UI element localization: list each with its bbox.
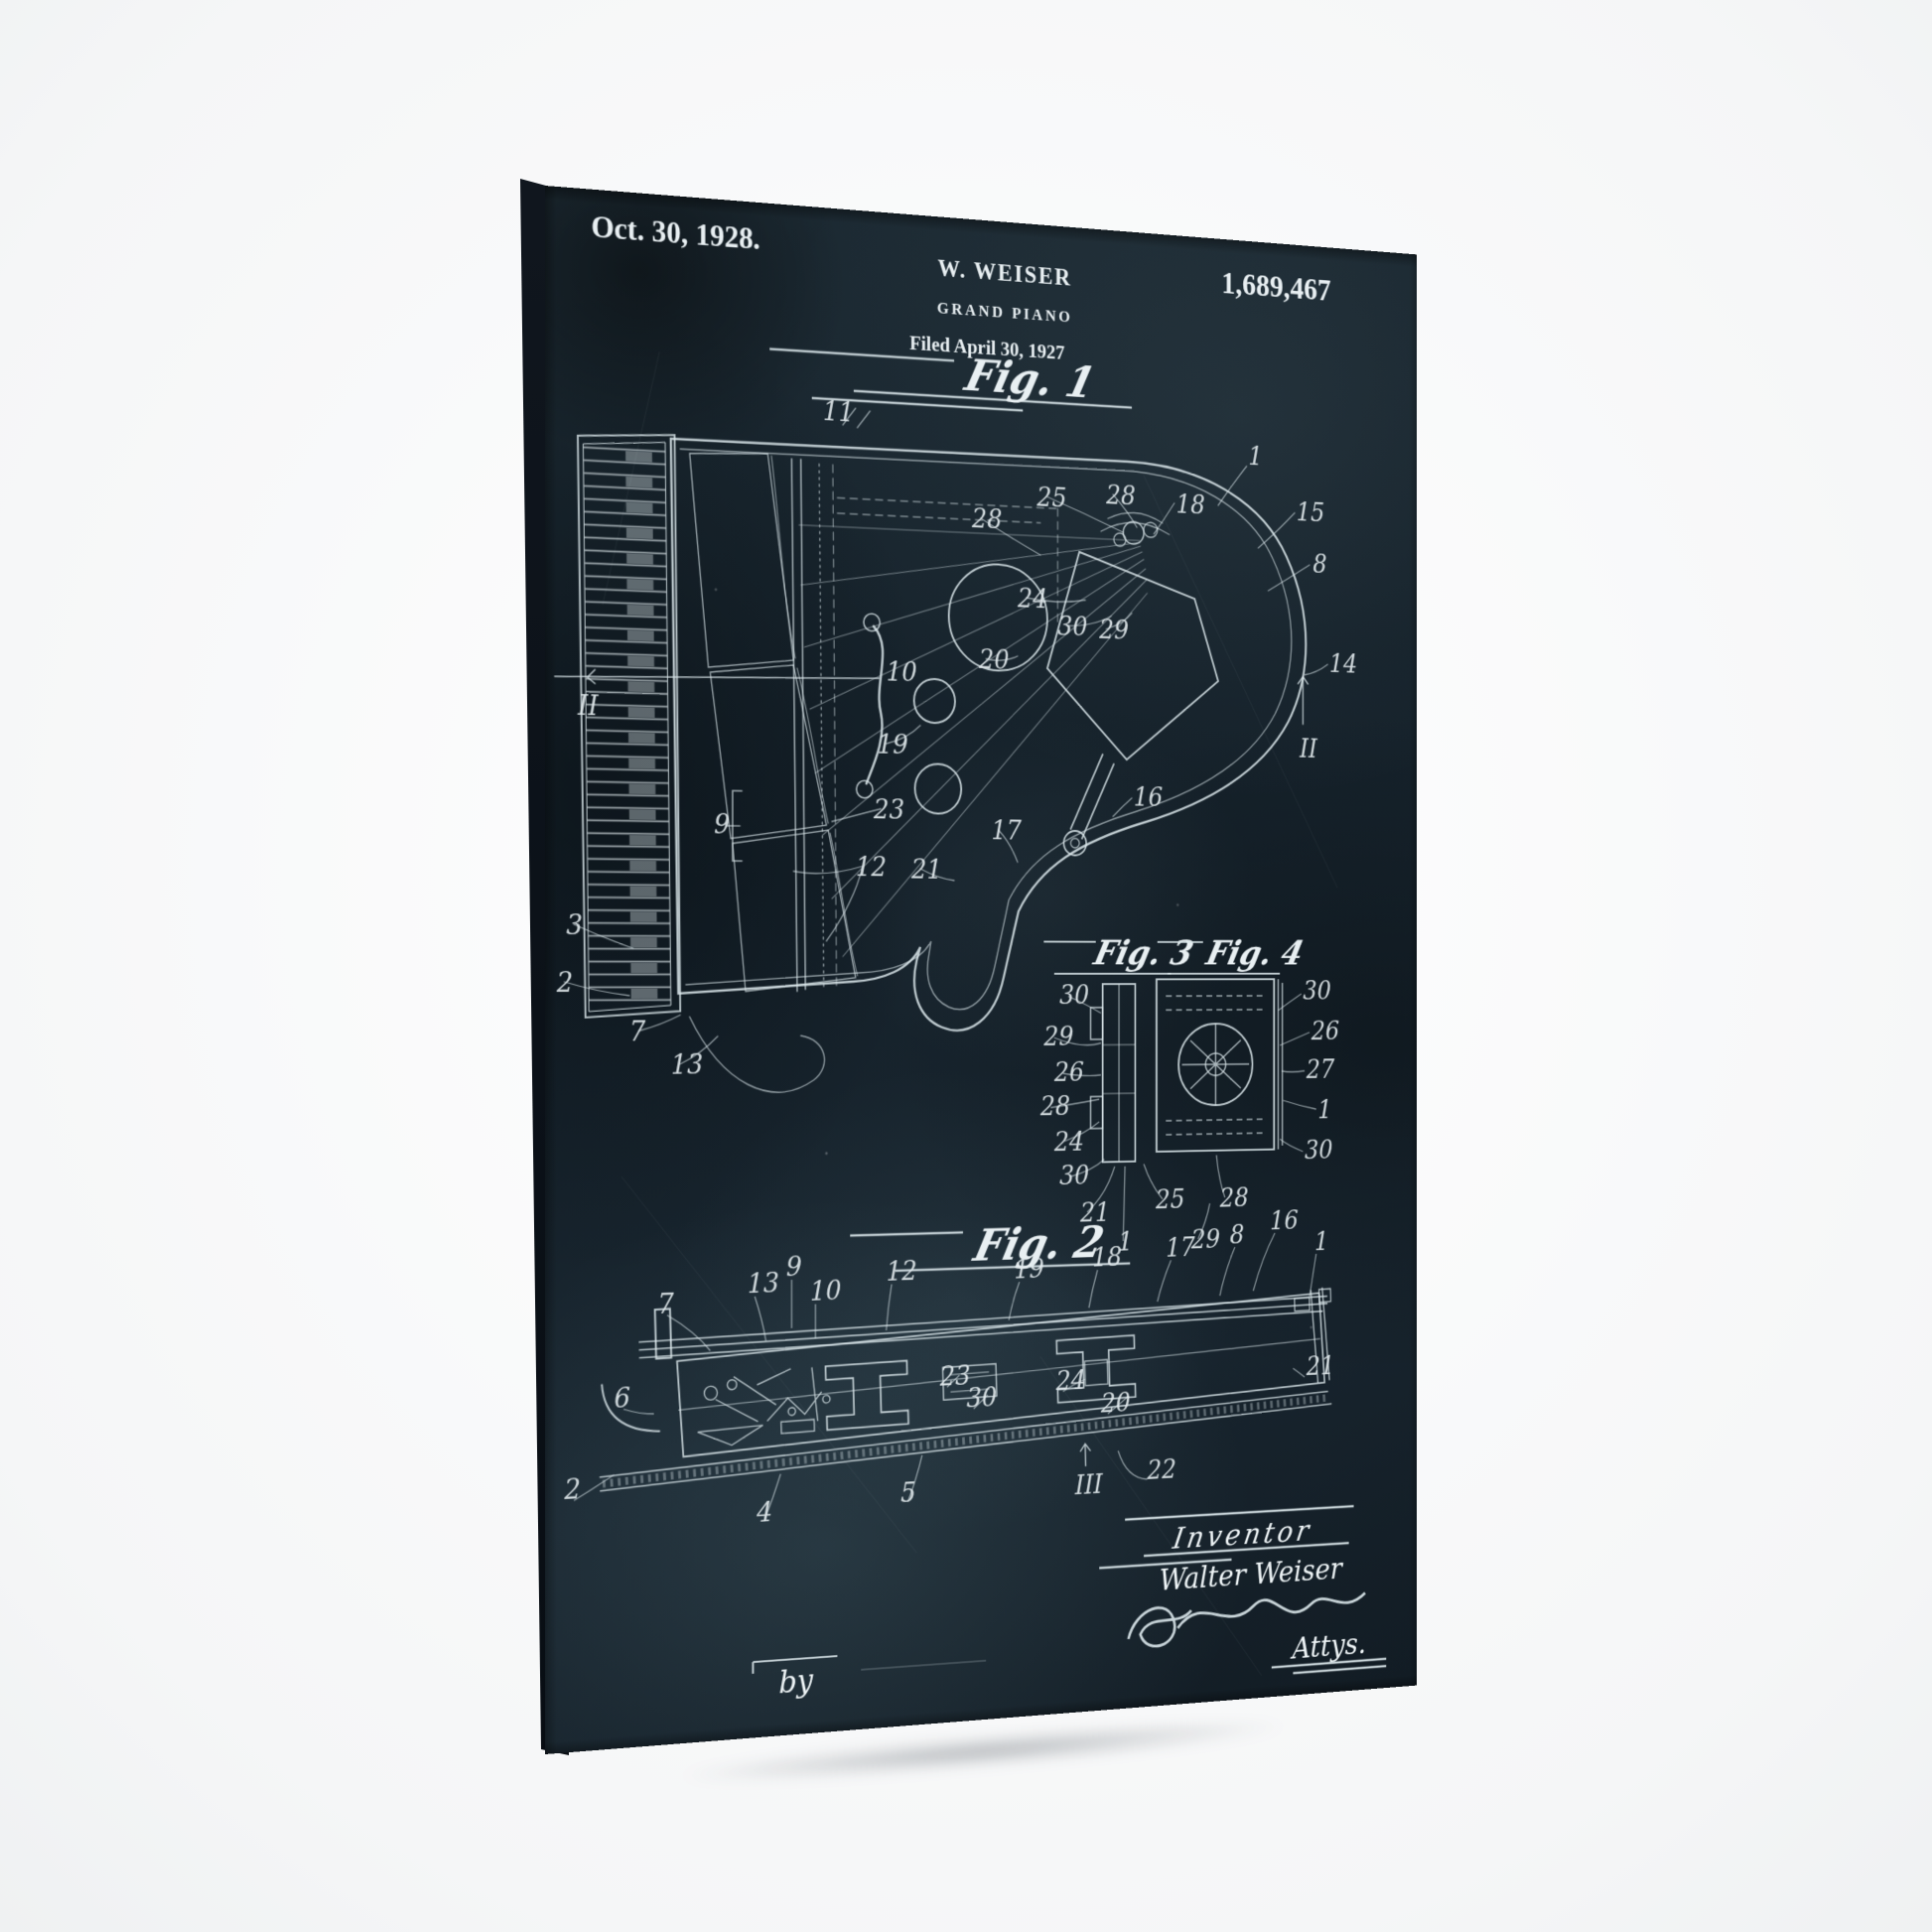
- callout-6: 6: [615, 1383, 630, 1415]
- callout-28: 28: [1039, 1092, 1070, 1122]
- i-beam-1: [826, 1361, 909, 1431]
- patent-date: Oct. 30, 1928.: [591, 209, 759, 256]
- patent-number: 1,689,467: [1221, 266, 1330, 308]
- callout-17: 17: [1166, 1233, 1194, 1263]
- callout-30: 30: [967, 1383, 998, 1414]
- f-hole: [857, 614, 883, 798]
- callout-1: 1: [1314, 1227, 1328, 1256]
- callout-10: 10: [887, 657, 917, 688]
- callout-4: 4: [756, 1497, 772, 1529]
- callout-2: 2: [563, 1474, 581, 1506]
- callout-28: 28: [971, 504, 1002, 535]
- callout-30: 30: [1303, 977, 1330, 1006]
- callout-10: 10: [810, 1276, 842, 1308]
- fig3-label-text: Fig. 3: [1089, 933, 1196, 973]
- callout-20: 20: [1100, 1388, 1131, 1419]
- callout-21: 21: [1306, 1351, 1334, 1381]
- callout-II: II: [577, 691, 599, 723]
- callout-20: 20: [978, 645, 1009, 676]
- callout-16: 16: [1270, 1206, 1299, 1236]
- product-photo-scene: Oct. 30, 1928. W. WEISER 1,689,467 GRAND…: [0, 0, 1932, 1932]
- callout-24: 24: [1055, 1366, 1086, 1397]
- callout-30: 30: [1057, 612, 1087, 642]
- patent-poster: Oct. 30, 1928. W. WEISER 1,689,467 GRAND…: [545, 186, 1417, 1754]
- tail-swirl: [690, 1017, 825, 1093]
- callout-13: 13: [748, 1268, 779, 1300]
- callout-26: 26: [1311, 1018, 1339, 1046]
- callout-19: 19: [1014, 1255, 1043, 1286]
- callout-24: 24: [1017, 584, 1047, 615]
- patent-title: GRAND PIANO: [937, 299, 1072, 327]
- callout-12: 12: [887, 1256, 917, 1287]
- callout-II: II: [1299, 735, 1317, 763]
- fig4-drawing: [1157, 979, 1283, 1152]
- callout-14: 14: [1329, 649, 1357, 679]
- strings-fan: [799, 525, 1148, 957]
- callout-18: 18: [1092, 1243, 1122, 1274]
- callout-30: 30: [1059, 981, 1089, 1011]
- action-mechanism: [696, 1366, 831, 1448]
- callout-24: 24: [1053, 1128, 1084, 1158]
- fig1-label-text: Fig. 1: [959, 349, 1100, 408]
- callout-21: 21: [910, 855, 942, 886]
- callouts-fig2: 7139101219181781616233024202122III245: [563, 1205, 1334, 1540]
- inventor-label: Inventor: [1170, 1515, 1314, 1557]
- by-label: by: [778, 1664, 813, 1701]
- callout-17: 17: [991, 816, 1021, 846]
- signature-block: Inventor Walter Weiser Attys. by: [753, 1504, 1386, 1715]
- callout-9: 9: [786, 1252, 802, 1283]
- callout-8: 8: [1230, 1221, 1244, 1251]
- callout-13: 13: [671, 1049, 703, 1080]
- callout-1: 1: [1248, 442, 1262, 472]
- callout-16: 16: [1134, 783, 1163, 813]
- patent-artwork-svg: Oct. 30, 1928. W. WEISER 1,689,467 GRAND…: [545, 186, 1417, 1754]
- callout-23: 23: [873, 795, 904, 826]
- callout-18: 18: [1176, 490, 1205, 521]
- strings-hatch: [690, 450, 858, 992]
- callout-2: 2: [556, 968, 574, 999]
- callout-3: 3: [566, 910, 583, 941]
- callout-28: 28: [1219, 1183, 1249, 1213]
- callout-30: 30: [1059, 1162, 1089, 1191]
- callout-9: 9: [714, 809, 730, 840]
- callout-27: 27: [1306, 1055, 1334, 1084]
- callout-III: III: [1074, 1470, 1103, 1501]
- callout-30: 30: [1305, 1136, 1332, 1165]
- callout-22: 22: [1147, 1455, 1176, 1486]
- callout-15: 15: [1297, 498, 1324, 528]
- fig4-label-text: Fig. 4: [1202, 933, 1308, 972]
- callout-7: 7: [657, 1289, 673, 1320]
- canvas-print: Oct. 30, 1928. W. WEISER 1,689,467 GRAND…: [545, 186, 1417, 1754]
- inventor-name-signature: Walter Weiser: [1160, 1553, 1344, 1597]
- callout-7: 7: [629, 1017, 645, 1047]
- callout-12: 12: [856, 853, 887, 884]
- callout-29: 29: [1042, 1023, 1073, 1052]
- callout-1: 1: [1317, 1096, 1331, 1125]
- callout-26: 26: [1053, 1058, 1084, 1088]
- callout-19: 19: [878, 730, 908, 760]
- fig3-label: Fig. 3: [1043, 933, 1196, 974]
- callout-28: 28: [1105, 481, 1136, 511]
- by-line: by: [753, 1645, 986, 1703]
- callout-25: 25: [1155, 1185, 1184, 1215]
- callout-25: 25: [1035, 483, 1066, 513]
- callout-11: 11: [823, 396, 854, 428]
- keyboard: [578, 430, 680, 1018]
- callout-8: 8: [1312, 550, 1326, 580]
- callout-29: 29: [1098, 616, 1129, 646]
- callout-5: 5: [900, 1478, 916, 1509]
- inventor-name-header: W. WEISER: [938, 255, 1072, 291]
- fig1-drawing: [555, 391, 1328, 1095]
